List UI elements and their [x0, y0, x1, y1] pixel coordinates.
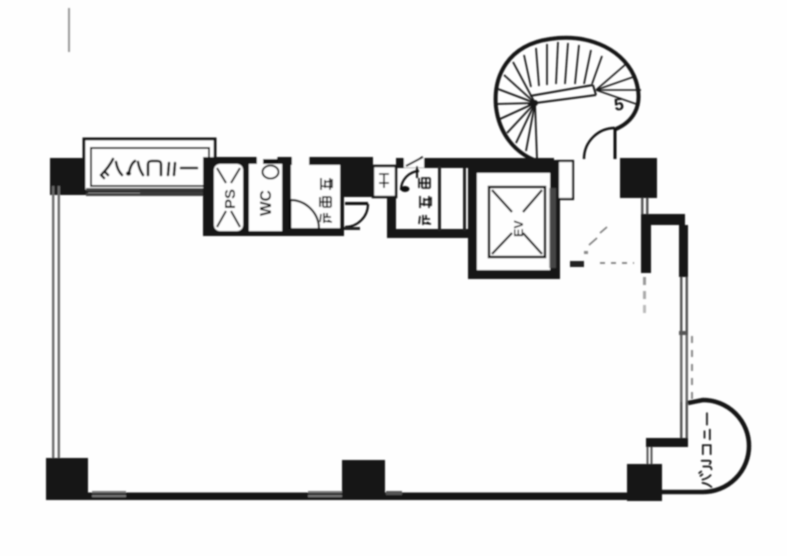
svg-text:PS: PS: [222, 189, 239, 209]
svg-text:5: 5: [613, 95, 625, 115]
svg-text:EV: EV: [512, 220, 526, 237]
svg-text:WC: WC: [258, 190, 275, 216]
